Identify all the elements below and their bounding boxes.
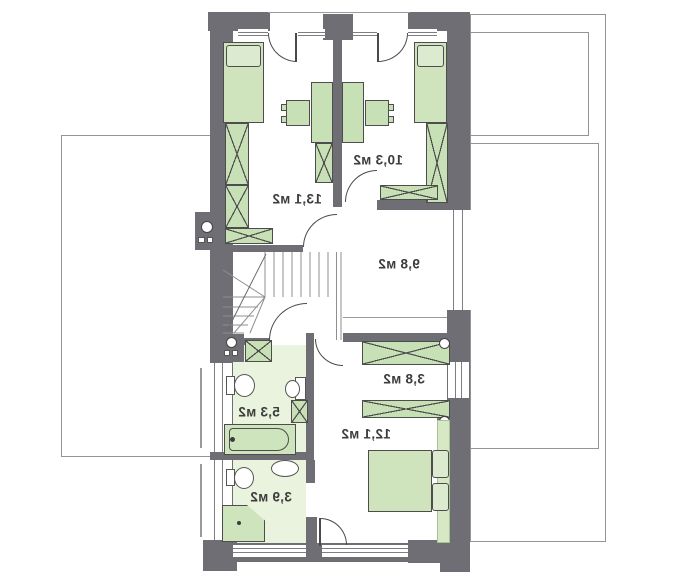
door-leaf-balcony-right (377, 33, 379, 62)
pillow-bottom-b (432, 483, 449, 511)
wall-wc-right-upper (306, 460, 315, 483)
chair-arm-top-left-a (281, 104, 287, 111)
area-label-wc: 3,9 м2 (250, 490, 292, 505)
dresser-top-right (380, 185, 438, 200)
pillow-bottom-a (432, 450, 449, 478)
toilet-bowl-bathroom (234, 374, 255, 397)
wall-wc-right-lower (306, 517, 317, 543)
window-top-left-b (298, 29, 325, 38)
door-arc-bedroom-right (345, 170, 377, 202)
cabinet-under-desk-left (315, 143, 333, 183)
closet-column-icon-top (439, 338, 450, 349)
wardrobe-top-left-a (225, 123, 249, 185)
area-label-bedroom-top-left: 13,1 м2 (272, 192, 322, 207)
wall-bathroom-right (306, 333, 314, 460)
chair-top-right (365, 100, 389, 126)
corner-block-bottom-left (203, 540, 237, 571)
window-sill-left-bathroom (200, 368, 202, 448)
window-top-left-a (238, 29, 268, 38)
door-leaf-bedroom-bottom (319, 518, 321, 546)
chair-arm-top-left-b (281, 116, 287, 123)
chair-top-left (286, 100, 310, 126)
area-label-hall: 9,8 м2 (378, 257, 420, 272)
shower-drain-icon (237, 521, 241, 525)
door-leaf-balcony-left (295, 33, 297, 62)
chimney-vent-icon-b (207, 237, 213, 243)
pillow-top-right (417, 45, 444, 67)
window-right-hall (445, 210, 472, 310)
desk-top-left (311, 82, 333, 143)
floor-plan: 13,1 м2 10,3 м2 9,8 м2 3,8 м2 12,1 м2 5,… (0, 0, 700, 575)
door-arc-bedroom-left (303, 214, 337, 247)
door-arc-bedroom-bottom (320, 518, 347, 545)
area-label-closet: 3,8 м2 (383, 372, 425, 387)
window-top-right-a (353, 29, 377, 38)
bed-bottom (368, 450, 432, 512)
chimney-vent-icon-a (198, 237, 205, 243)
sink-bowl-bathroom (285, 380, 300, 398)
roof-outline-right-mid (470, 143, 599, 449)
wardrobe-top-left-b (225, 185, 249, 228)
area-label-bedroom-bottom: 12,1 м2 (341, 427, 391, 442)
washer-bathroom-right (291, 400, 308, 423)
closet-wardrobe-top (362, 341, 450, 365)
terrace-outline-left (61, 135, 211, 457)
top-edge-line (268, 12, 410, 13)
staircase (220, 250, 345, 340)
dresser-top-left (225, 228, 273, 244)
chimney-flue-icon (201, 221, 213, 233)
pillow-top-left (226, 45, 261, 67)
bathtub-inner (229, 428, 289, 451)
chair-arm-top-right-a (388, 104, 394, 111)
landing-edge-line (343, 317, 447, 318)
closet-wardrobe-bottom (362, 400, 450, 418)
window-right-closet (448, 362, 469, 398)
area-label-bathroom: 5,3 м2 (238, 405, 280, 420)
window-sill-left-wc (200, 464, 202, 537)
window-bottom-wc (233, 545, 306, 557)
toilet-bowl-wc (234, 467, 254, 489)
washer-bathroom-top (245, 340, 272, 362)
sink-wc (271, 460, 299, 477)
shaft-vent-icon-b (232, 350, 238, 356)
partition-bedrooms (333, 26, 342, 207)
corner-step-bottom-right (440, 540, 470, 572)
balcony-outline-right-top (470, 32, 589, 136)
shaft-vent-icon-a (224, 350, 230, 356)
bathtub-faucet-icon (230, 437, 235, 442)
desk-top-right (342, 82, 364, 143)
chair-arm-top-right-b (388, 116, 394, 123)
door-arc-balcony-left (268, 33, 297, 62)
window-bottom-bedroom (322, 545, 408, 557)
bedroom-bottom-rug (437, 420, 450, 543)
door-arc-balcony-right (378, 33, 408, 62)
door-arc-closet (315, 339, 343, 366)
area-label-bedroom-top-right: 10,3 м2 (353, 153, 403, 168)
window-top-right-b (408, 29, 437, 38)
